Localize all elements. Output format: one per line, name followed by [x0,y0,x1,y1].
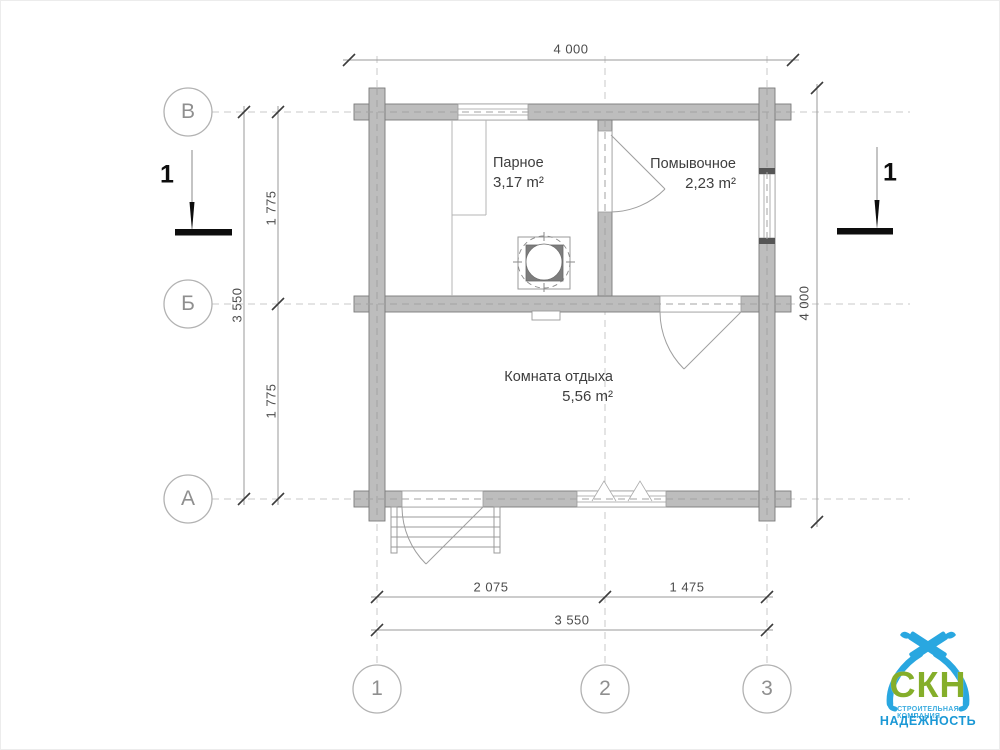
door-swing-restroom [660,312,741,369]
room-area: 2,23 m² [596,174,736,194]
axis-row-v: В [181,100,195,124]
logo-name-line: НАДЁЖНОСТЬ [880,714,976,728]
floor-plan-page: Парное 3,17 m² Помывочное 2,23 m² Комнат… [0,0,1000,750]
dim-right-overall: 4 000 [797,285,812,320]
room-area: 3,17 m² [493,173,544,193]
logo-abbr: СКН [890,664,967,706]
company-logo: СКН СТРОИТЕЛЬНАЯ КОМПАНИЯ НАДЁЖНОСТЬ [872,620,984,732]
axis-col-3: 3 [761,677,773,701]
dim-top-overall: 4 000 [553,42,588,57]
dim-bottom-left: 2 075 [473,580,508,595]
axis-row-b: Б [181,292,195,316]
room-name: Комната отдыха [463,367,613,387]
door-swing-entrance [402,507,483,564]
room-name: Помывочное [596,154,736,174]
dim-left-total: 3 550 [230,287,245,322]
room-area: 5,56 m² [463,387,613,407]
room-label-washing: Помывочное 2,23 m² [596,154,736,194]
section-label-right: 1 [883,159,897,188]
dimension-lines [244,60,817,630]
window-bottom [577,481,666,507]
dimension-ticks [238,54,823,636]
porch-steps [391,507,500,553]
room-label-steam: Парное 3,17 m² [493,153,544,193]
section-label-left: 1 [160,161,174,190]
dim-bottom-total: 3 550 [554,613,589,628]
room-label-rest: Комната отдыха 5,56 m² [463,367,613,407]
room-name: Парное [493,153,544,173]
axis-row-a: А [181,487,195,511]
bench-outline [452,120,486,296]
dim-bottom-right: 1 475 [669,580,704,595]
dim-left-lower: 1 775 [264,383,279,418]
dim-left-upper: 1 775 [264,190,279,225]
axis-col-1: 1 [371,677,383,701]
section-mark-left [175,150,232,236]
axis-col-2: 2 [599,677,611,701]
stove-firebox-notch [532,311,560,320]
grid-axis-lines [212,56,910,666]
